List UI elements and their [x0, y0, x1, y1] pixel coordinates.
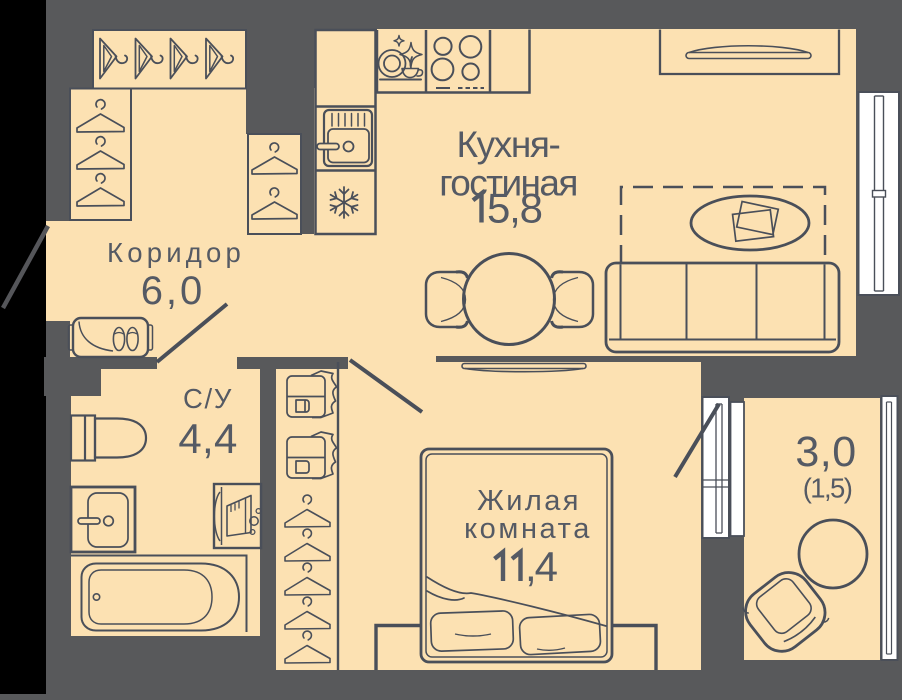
svg-text:4,4: 4,4	[178, 415, 237, 462]
svg-text:Коридор: Коридор	[107, 237, 245, 268]
svg-text:комната: комната	[464, 513, 592, 545]
svg-text:6,0: 6,0	[141, 269, 206, 313]
svg-text:5,8: 5,8	[487, 185, 542, 232]
svg-text:,4: ,4	[525, 543, 558, 590]
svg-text:Кухня-: Кухня-	[457, 124, 560, 165]
svg-text:С/У: С/У	[183, 383, 233, 414]
svg-text:3,0: 3,0	[795, 428, 856, 476]
svg-text:(1,5): (1,5)	[803, 473, 852, 504]
